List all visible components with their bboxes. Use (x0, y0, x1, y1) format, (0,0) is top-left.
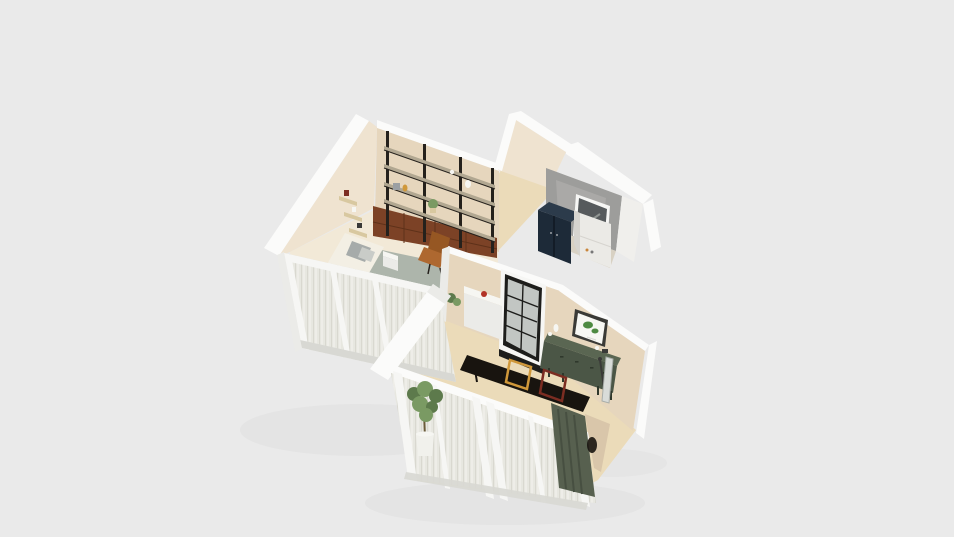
corner-shelf-card (352, 207, 356, 212)
plant-foliage-3 (429, 389, 443, 403)
floor-plant-leaves-2 (453, 298, 461, 306)
navy-cabinet-handle-right (556, 234, 558, 236)
red-kettle (481, 291, 487, 297)
lamp-head (598, 357, 602, 361)
sideboard-book (602, 349, 608, 353)
art-leaf-1 (583, 322, 593, 329)
appliance-knob-gray (591, 251, 594, 254)
corner-shelf-book (344, 190, 349, 196)
shelf-white-ornament (450, 170, 454, 174)
counter-white-item (491, 296, 495, 300)
shelf-white-jug (465, 180, 471, 188)
sideboard-ornament (595, 346, 599, 350)
sideboard-vase (554, 324, 559, 332)
navy-cabinet-handle-left (550, 232, 552, 234)
appliance-knob-orange (586, 249, 589, 252)
plant-pot-rim (416, 432, 434, 437)
dark-chair-silhouette (587, 437, 597, 453)
plant-foliage-6 (419, 408, 433, 422)
shelf-books (393, 183, 400, 190)
sideboard-knob-1 (560, 356, 564, 358)
shelf-plant (428, 199, 438, 209)
shelf-post-3 (459, 157, 462, 248)
corner-shelf-box (357, 223, 362, 228)
floorplan-render-canvas[interactable] (0, 0, 954, 537)
shelf-post-2 (423, 144, 426, 242)
glass-panel-door[interactable] (499, 269, 546, 374)
shelf-plant-pot (430, 208, 436, 213)
art-leaf-2 (592, 329, 599, 334)
sideboard-knob-3 (590, 367, 594, 369)
sideboard-knob-2 (575, 361, 579, 363)
sideboard-cup (548, 332, 552, 336)
shelf-yellow-vase (403, 185, 408, 192)
plant-pot (416, 434, 434, 456)
